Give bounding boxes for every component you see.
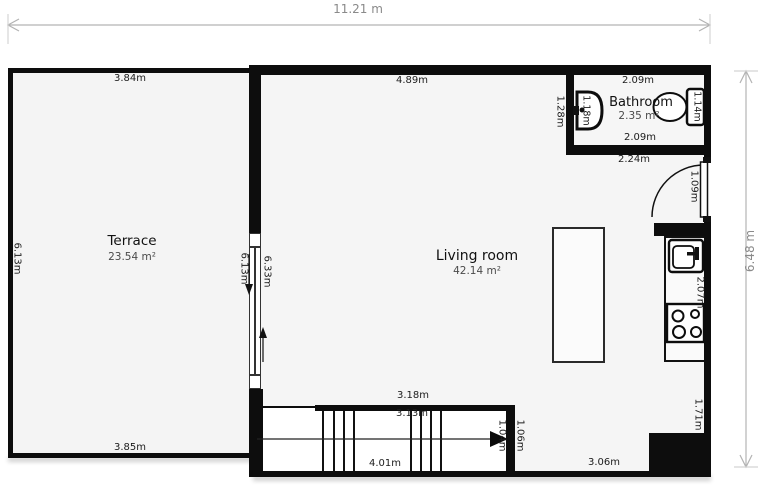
- entry-door-dim: 1.09m: [688, 167, 701, 207]
- terrace-dim-left: 6.13m: [11, 239, 24, 279]
- door-frame-bottom: [703, 216, 711, 222]
- bathroom-dim-below-wall: 2.24m: [604, 153, 664, 166]
- terrace-dim-bottom: 3.85m: [100, 441, 160, 454]
- bathroom-dim-left: 1.28m: [554, 92, 567, 132]
- entry-door[interactable]: [652, 157, 711, 222]
- kitchen-dim-upper: 2.07m: [694, 273, 707, 313]
- bathroom-dim-bottom: 2.09m: [610, 131, 670, 144]
- divider-dim-terrace-side: 6.13m: [238, 249, 251, 289]
- bathroom-toilet-dim: 1.14m: [691, 87, 704, 127]
- bathroom-name: Bathroom: [581, 95, 701, 110]
- kitchen-dim-lower: 1.71m: [692, 395, 705, 435]
- overall-width-label: 11.21 m: [318, 2, 398, 16]
- floor-plan-canvas: 11.21 m 6.48 m 3.84m Terrace 23.54 m² 6.…: [0, 0, 784, 488]
- living-dim-bottom-right: 3.06m: [574, 456, 634, 469]
- kitchen-sink-icon[interactable]: [669, 240, 703, 272]
- stairs-dim-bottom: 4.01m: [355, 457, 415, 470]
- terrace-name: Terrace: [72, 233, 192, 249]
- bathroom-sink-dim: 1.18m: [580, 91, 593, 131]
- terrace-dim-top: 3.84m: [100, 72, 160, 85]
- stairs-dim-width-outer: 1.06m: [514, 416, 527, 456]
- stairs-dim-inner-top: 3.13m: [382, 407, 442, 420]
- dimension-line-top: [8, 14, 710, 44]
- slide-arrow-up: [259, 327, 267, 362]
- overall-height-label: 6.48 m: [743, 227, 757, 275]
- door-frame-top: [703, 157, 711, 163]
- door-leaf: [701, 162, 708, 217]
- living-room-name: Living room: [397, 248, 557, 264]
- living-dim-top: 4.89m: [382, 74, 442, 87]
- bathroom-dim-top: 2.09m: [608, 74, 668, 87]
- living-room-area: 42.14 m²: [437, 265, 517, 277]
- terrace-area: 23.54 m²: [92, 251, 172, 263]
- stairs-direction-arrow: [257, 431, 508, 447]
- divider-dim-living-side: 6.33m: [261, 252, 274, 292]
- stairs-dim-outer-top: 3.18m: [383, 389, 443, 402]
- bathroom-area: 2.35 m²: [599, 110, 679, 122]
- stairs-dim-width-inner: 1.04m: [496, 416, 509, 456]
